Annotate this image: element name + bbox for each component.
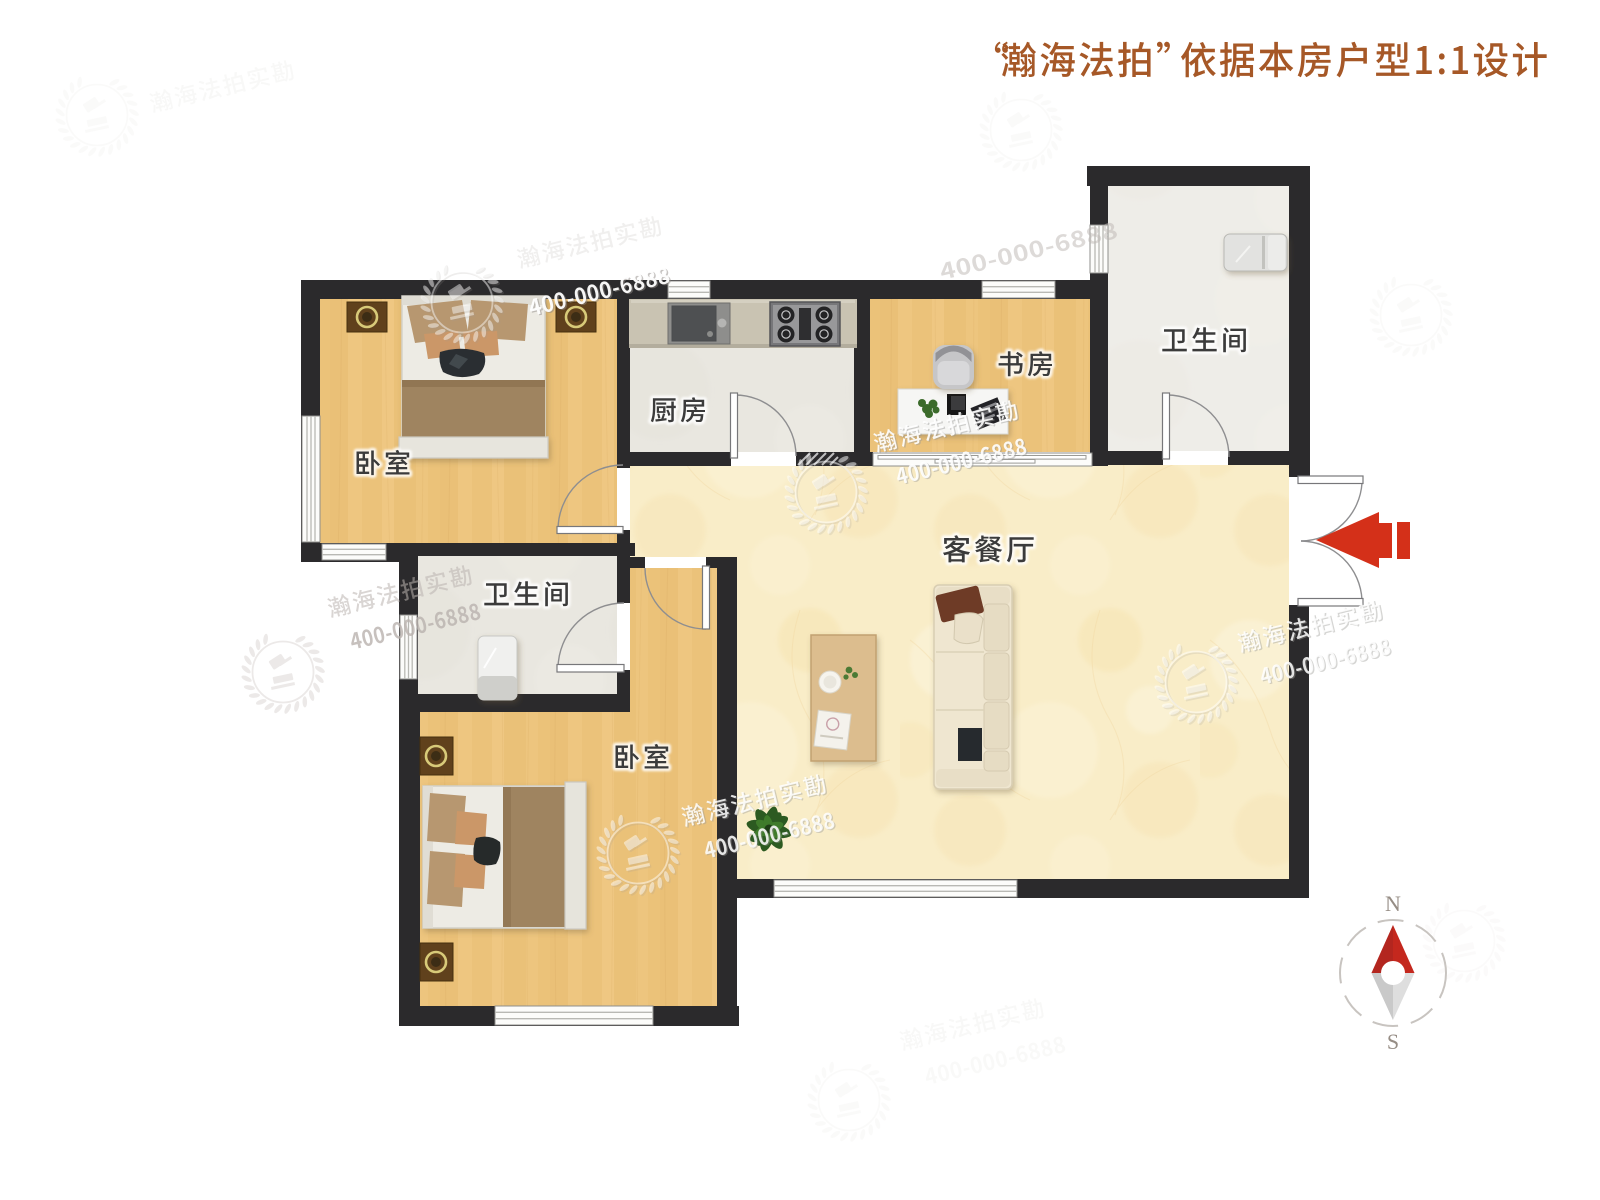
svg-text:S: S bbox=[1387, 1029, 1399, 1054]
svg-text:N: N bbox=[1385, 891, 1401, 916]
